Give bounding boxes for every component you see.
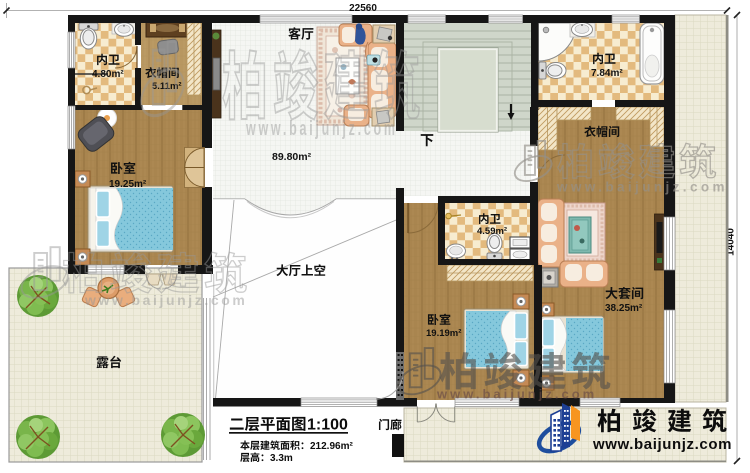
svg-text:4.59m²: 4.59m² xyxy=(477,226,507,237)
svg-text:38.25m²: 38.25m² xyxy=(605,303,643,314)
svg-text:22560: 22560 xyxy=(349,3,377,14)
svg-text:19.25m²: 19.25m² xyxy=(109,179,147,190)
svg-text:www.baijunjz.com: www.baijunjz.com xyxy=(556,180,728,195)
svg-text:www.baijunjz.com: www.baijunjz.com xyxy=(245,117,397,140)
svg-text:www.baijunjz.com: www.baijunjz.com xyxy=(592,436,732,453)
svg-text:7.84m²: 7.84m² xyxy=(591,68,623,79)
svg-text:www.baijunjz.com: www.baijunjz.com xyxy=(436,387,597,402)
svg-text:212.96m²: 212.96m² xyxy=(310,441,353,452)
svg-text:www.baijunjz.com: www.baijunjz.com xyxy=(84,292,247,308)
svg-text:89.80m²: 89.80m² xyxy=(272,151,312,163)
svg-text:1:100: 1:100 xyxy=(307,417,348,434)
svg-text:4.80m²: 4.80m² xyxy=(92,69,124,80)
svg-text:19.19m²: 19.19m² xyxy=(426,328,461,339)
svg-text:3.3m: 3.3m xyxy=(270,453,293,464)
